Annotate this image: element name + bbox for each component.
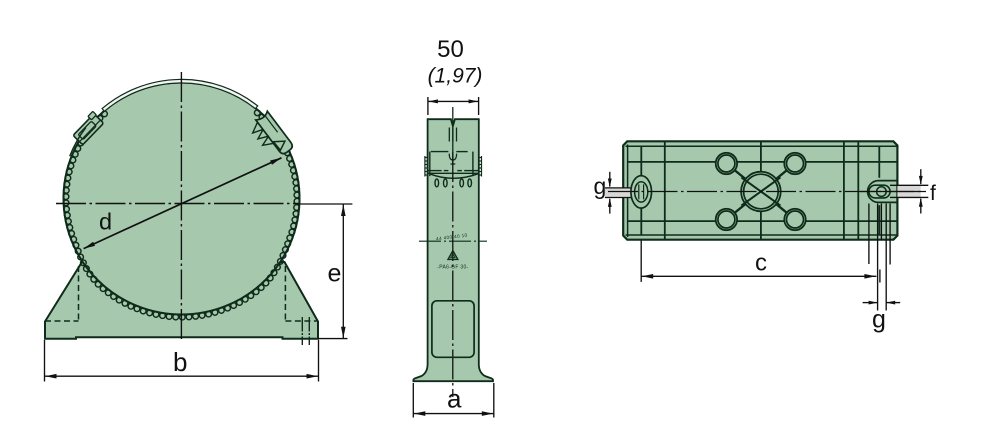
svg-text:e: e: [328, 260, 342, 288]
svg-text:f: f: [930, 182, 936, 205]
svg-text:c: c: [755, 250, 767, 277]
svg-text:50: 50: [437, 36, 464, 63]
svg-text:a: a: [447, 384, 462, 414]
svg-text:g: g: [872, 306, 886, 334]
svg-text:(1,97): (1,97): [428, 65, 483, 88]
svg-text:g: g: [594, 173, 607, 199]
svg-text:b: b: [173, 347, 187, 377]
svg-text:-PA6-GF 30-: -PA6-GF 30-: [437, 265, 468, 271]
svg-text:d: d: [99, 209, 112, 235]
